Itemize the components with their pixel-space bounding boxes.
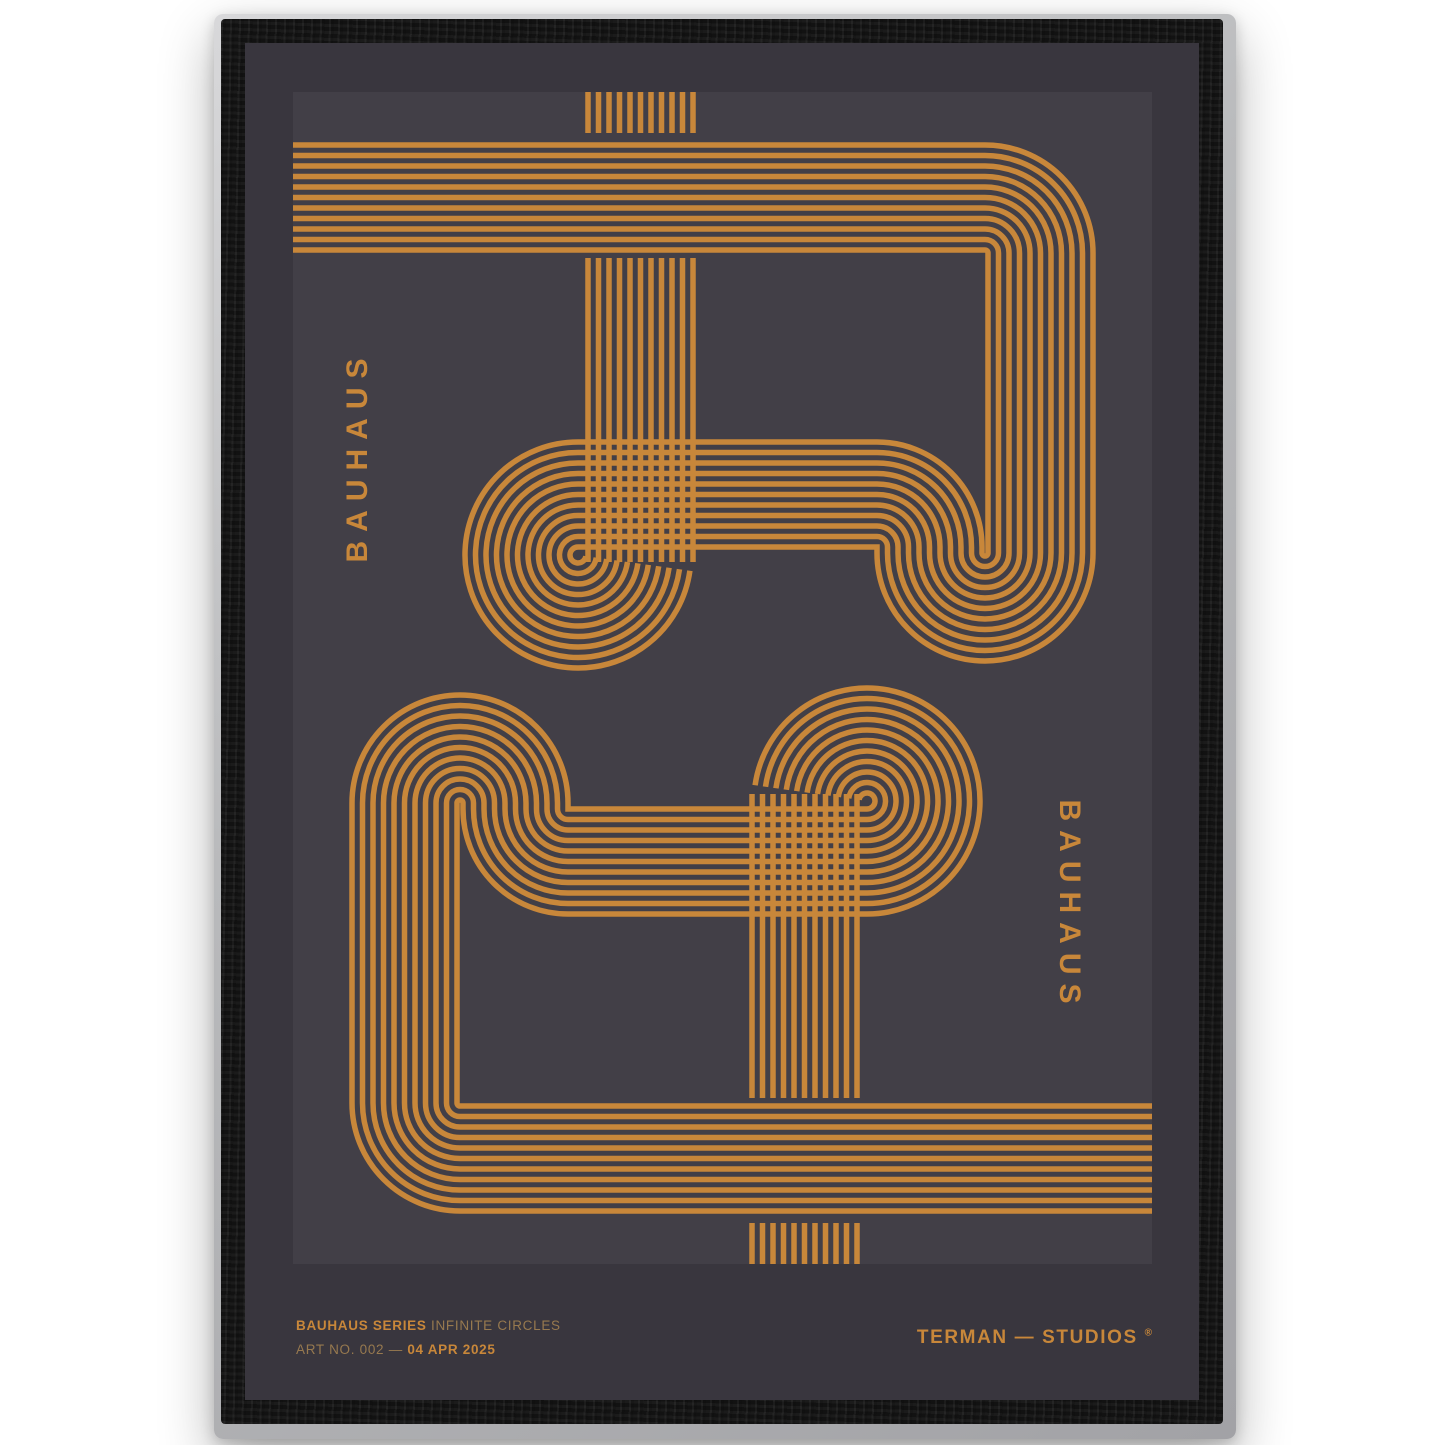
- art-board: [293, 92, 1152, 1264]
- poster: BAUHAUS BAUHAUS BAUHAUS SERIES INFINITE …: [245, 43, 1199, 1400]
- footer-series-bold: BAUHAUS SERIES: [296, 1318, 427, 1333]
- studio-credit: TERMAN — STUDIOS ®: [917, 1327, 1152, 1349]
- footer-artno-line: ART NO. 002 — 04 APR 2025: [296, 1338, 561, 1362]
- footer-series-line: BAUHAUS SERIES INFINITE CIRCLES: [296, 1314, 561, 1338]
- studio-name: TERMAN — STUDIOS: [917, 1327, 1145, 1348]
- footer-artno-bold: 04 APR 2025: [407, 1342, 495, 1357]
- footer-credits: BAUHAUS SERIES INFINITE CIRCLES ART NO. …: [296, 1314, 561, 1362]
- registered-mark: ®: [1145, 1328, 1152, 1339]
- footer-series-regular: INFINITE CIRCLES: [427, 1318, 561, 1333]
- picture-frame: BAUHAUS BAUHAUS BAUHAUS SERIES INFINITE …: [221, 19, 1223, 1424]
- vertical-label-left: BAUHAUS: [341, 350, 375, 563]
- frame-edge-plate: BAUHAUS BAUHAUS BAUHAUS SERIES INFINITE …: [214, 14, 1236, 1439]
- poster-artwork: [293, 92, 1152, 1264]
- footer-artno-regular: ART NO. 002 —: [296, 1342, 407, 1357]
- vertical-label-right: BAUHAUS: [1052, 800, 1086, 1013]
